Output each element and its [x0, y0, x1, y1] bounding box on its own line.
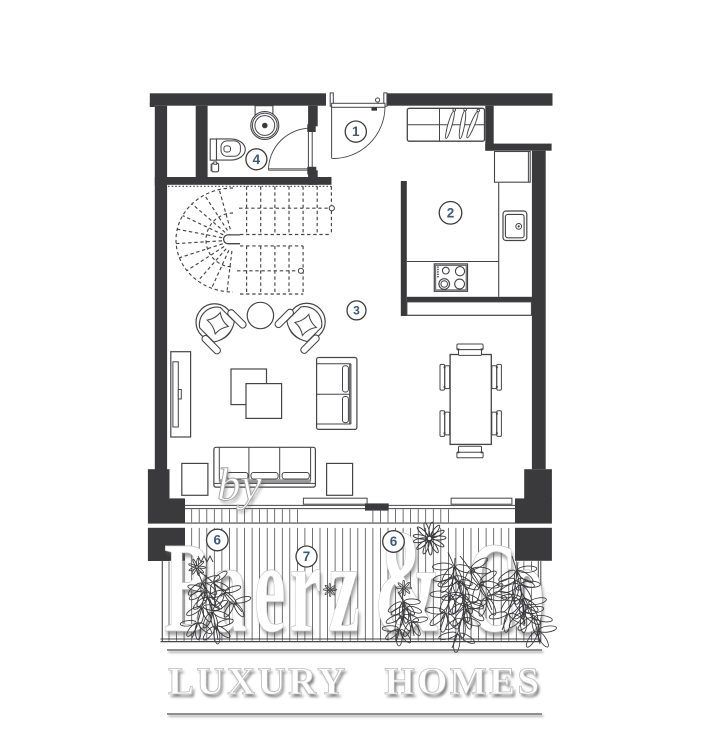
svg-text:6: 6: [390, 534, 398, 549]
svg-text:6: 6: [214, 533, 222, 548]
